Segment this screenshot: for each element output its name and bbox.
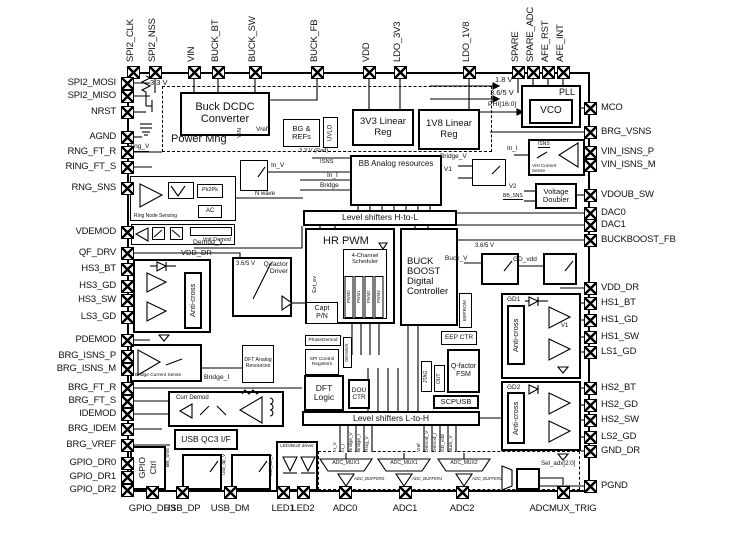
pin-VIN_ISNS_M bbox=[584, 159, 597, 172]
pin-PDEMOD bbox=[121, 334, 134, 347]
pin-HS1_SW bbox=[584, 331, 597, 344]
pin-label-BRG_FT_S: BRG_FT_S bbox=[2, 396, 116, 406]
pin-GPIO_DR3 bbox=[146, 486, 159, 499]
pin-label-BRG_FT_R: BRG_FT_R bbox=[2, 383, 116, 393]
pin-USB_DP bbox=[176, 486, 189, 499]
pin-label-BUCK_SW: BUCK_SW bbox=[248, 8, 258, 62]
pin-BRG_ISNS_M bbox=[121, 363, 134, 376]
label-bb-sns-gpio: BB_SNS bbox=[167, 448, 172, 467]
adc-buffer-label-2: ADC_BUFFER2 bbox=[472, 477, 502, 481]
pin-label-ADCMUX_TRIG: ADCMUX_TRIG bbox=[518, 504, 608, 514]
pin-VIN bbox=[188, 66, 201, 79]
ls2-buffer-icon bbox=[549, 421, 570, 442]
wire-label-Buck_V: Buck_V bbox=[450, 428, 455, 452]
wire-label-Bridge_V: Bridge_V bbox=[350, 428, 355, 452]
pin-HS1_GD bbox=[584, 314, 597, 327]
label-3v3-pad: 3.3 V (Pad) bbox=[299, 149, 328, 155]
pin-BRG_IDEM bbox=[121, 423, 134, 436]
pin-GPIO_DR2 bbox=[121, 484, 134, 497]
pin-VDD bbox=[363, 66, 376, 79]
label-in-v: In_V bbox=[271, 163, 284, 170]
pin-SPI2_NSS bbox=[149, 66, 162, 79]
label-phi: PHI[16:0] bbox=[488, 102, 516, 109]
curr-demod-amp-icon bbox=[180, 404, 192, 418]
label-ext-ev: Ext_ev bbox=[313, 276, 319, 293]
pin-label-NRST: NRST bbox=[2, 107, 116, 117]
pin-label-DAC1: DAC1 bbox=[601, 220, 726, 230]
pin-GPIO_DR0 bbox=[121, 457, 134, 470]
pin-LS2_GD bbox=[584, 431, 597, 444]
label-vdd-dr-net: VDD_DR bbox=[181, 249, 212, 257]
label-3v6-5v-sw: 3.6/5 V bbox=[475, 243, 494, 249]
ls1-buffer-icon bbox=[549, 339, 570, 360]
pin-label-LS3_GD: LS3_GD bbox=[2, 312, 116, 322]
pin-ADCMUX_TRIG bbox=[557, 486, 570, 499]
label-usb-dm-v: Usb_dm_V bbox=[269, 454, 274, 476]
pin-label-LS1_GD: LS1_GD bbox=[601, 347, 726, 357]
pin-label-VDD_DR: VDD_DR bbox=[601, 283, 726, 293]
pin-label-SPARE: SPARE bbox=[511, 8, 521, 62]
pin-USB_DM bbox=[224, 486, 237, 499]
pin-LS1_GD bbox=[584, 346, 597, 359]
pin-label-QF_DRV: QF_DRV bbox=[2, 248, 116, 258]
pin-ADC2 bbox=[456, 486, 469, 499]
label-v2: V2 bbox=[509, 184, 516, 190]
pin-BUCK_FB bbox=[311, 66, 324, 79]
pin-RING_FT_S bbox=[121, 161, 134, 174]
pin-label-BRG_ISNS_P: BRG_ISNS_P bbox=[2, 351, 116, 361]
pin-label-BUCKBOOST_FB: BUCKBOOST_FB bbox=[601, 235, 726, 245]
pin-GND_DR bbox=[584, 445, 597, 458]
label-bridge-bb: Bridge bbox=[320, 183, 339, 190]
label-in-i-vin: In_I bbox=[507, 146, 517, 152]
label-sel-adx: Sel_adx[2:0] bbox=[541, 461, 575, 467]
pin-PGND bbox=[584, 480, 597, 493]
pin-label-RNG_SNS: RNG_SNS bbox=[2, 183, 116, 193]
pin-BUCK_BT bbox=[212, 66, 225, 79]
pin-label-DAC0: DAC0 bbox=[601, 208, 726, 218]
pin-label-HS3_SW: HS3_SW bbox=[2, 295, 116, 305]
label-demod-v: Demod_V bbox=[193, 240, 223, 247]
pin-label-BRG_ISNS_M: BRG_ISNS_M bbox=[2, 364, 116, 374]
curr-demod-amp2-icon bbox=[240, 397, 262, 423]
wire-label-Ring_V: Ring_V bbox=[366, 428, 371, 452]
pin-HS3_BT bbox=[121, 263, 134, 276]
pin-label-LDO_3V3: LDO_3V3 bbox=[393, 8, 403, 62]
label-n-wave: N wave bbox=[255, 191, 275, 197]
led1-icon bbox=[283, 457, 297, 471]
pin-label-VDD: VDD bbox=[362, 8, 372, 62]
pin-LED2 bbox=[297, 486, 310, 499]
adc-mux-label-2: ADC_MUX2 bbox=[438, 461, 490, 466]
pin-label-GPIO_DR1: GPIO_DR1 bbox=[2, 472, 116, 482]
pin-label-VIN: VIN bbox=[187, 8, 197, 62]
wire-label-In_V: In_V bbox=[334, 428, 339, 452]
pin-BRG_FT_R bbox=[121, 382, 134, 395]
pin-label-HS1_BT: HS1_BT bbox=[601, 298, 726, 308]
pin-SPI2_MOSI bbox=[121, 77, 134, 90]
gd1-gnd-icon bbox=[558, 367, 568, 373]
adc-buffer0-icon bbox=[338, 474, 354, 486]
pin-label-VIN_ISNS_M: VIN_ISNS_M bbox=[601, 160, 726, 170]
qf-out-buffer-icon bbox=[282, 296, 292, 310]
pin-DAC1 bbox=[584, 219, 597, 232]
pin-label-RING_FT_S: RING_FT_S bbox=[2, 162, 116, 172]
pin-AFE_INT bbox=[557, 66, 570, 79]
pin-AGND bbox=[121, 131, 134, 144]
label-isns-bb: ISNS bbox=[320, 160, 334, 166]
pin-label-SPI2_MISO: SPI2_MISO bbox=[2, 91, 116, 101]
pin-VDD_DR bbox=[584, 282, 597, 295]
pin-LDO_1V8 bbox=[463, 66, 476, 79]
pin-GPIO_DR1 bbox=[121, 471, 134, 484]
pin-BRG_FT_S bbox=[121, 395, 134, 408]
pin-label-HS1_SW: HS1_SW bbox=[601, 332, 726, 342]
label-v1-gd1: V1 bbox=[561, 323, 568, 329]
pin-BUCKBOOST_FB bbox=[584, 234, 597, 247]
adc-buffer2-icon bbox=[456, 474, 472, 486]
pin-HS1_BT bbox=[584, 297, 597, 310]
pin-label-IDEMOD: IDEMOD bbox=[2, 409, 116, 419]
adc-mux-label-1: ADC_MUX1 bbox=[378, 461, 430, 466]
pin-label-BUCK_BT: BUCK_BT bbox=[211, 8, 221, 62]
pin-label-SPARE_ADC: SPARE_ADC bbox=[526, 8, 536, 62]
pin-label-RNG_FT_R: RNG_FT_R bbox=[2, 147, 116, 157]
pin-LS3_GD bbox=[121, 311, 134, 324]
pin-HS3_GD bbox=[121, 280, 134, 293]
hs2-buffer-icon bbox=[549, 393, 570, 414]
label-in-i-bb: In_I bbox=[327, 173, 338, 180]
pin-BUCK_SW bbox=[249, 66, 262, 79]
pin-label-LDO_1V8: LDO_1V8 bbox=[462, 8, 472, 62]
pin-label-VIN_ISNS_P: VIN_ISNS_P bbox=[601, 147, 726, 157]
pin-label-GPIO_DR0: GPIO_DR0 bbox=[2, 458, 116, 468]
adc-buffer1-icon bbox=[396, 474, 412, 486]
pin-AFE_RST bbox=[542, 66, 555, 79]
pin-NRST bbox=[121, 106, 134, 119]
pin-label-SPI2_MOSI: SPI2_MOSI bbox=[2, 78, 116, 88]
pin-RNG_SNS bbox=[121, 182, 134, 195]
pin-RNG_FT_R bbox=[121, 146, 134, 159]
pin-SPI2_MISO bbox=[121, 90, 134, 103]
pin-ADC0 bbox=[339, 486, 352, 499]
pin-label-PDEMOD: PDEMOD bbox=[2, 335, 116, 345]
pin-label-BUCK_FB: BUCK_FB bbox=[310, 8, 320, 62]
gd2-diode-icon bbox=[529, 385, 538, 394]
ls3-buffer-icon bbox=[147, 302, 166, 321]
pin-label-HS2_SW: HS2_SW bbox=[601, 415, 726, 425]
pin-label-SPI2_CLK: SPI2_CLK bbox=[126, 8, 136, 62]
pin-label-MCO: MCO bbox=[601, 103, 726, 113]
label-3v6-5v: 3.6/5 V bbox=[490, 89, 514, 97]
vin-sense-amp-icon bbox=[559, 143, 578, 167]
label-bb-sns: BB_SNS bbox=[503, 194, 523, 200]
pin-label-HS2_BT: HS2_BT bbox=[601, 383, 726, 393]
pin-HS2_GD bbox=[584, 399, 597, 412]
block-diagram: Power Mng Buck DCDC Converter BG & REFs … bbox=[0, 0, 733, 543]
led2-icon bbox=[301, 457, 315, 471]
pin-label-GND_DR: GND_DR bbox=[601, 446, 726, 456]
label-bridge-i: Bridge_I bbox=[204, 375, 229, 382]
pin-QF_DRV bbox=[121, 247, 134, 260]
pin-LDO_3V3 bbox=[394, 66, 407, 79]
label-1v8: 1.8 V bbox=[495, 76, 513, 84]
pin-HS2_SW bbox=[584, 414, 597, 427]
label-vref: Vref bbox=[256, 127, 268, 134]
pin-IDEMOD bbox=[121, 408, 134, 421]
wire-label-Bridge_I: Bridge_I bbox=[358, 428, 363, 452]
bridge-sense-amp-icon bbox=[138, 350, 160, 375]
hs3-buffer-icon bbox=[147, 273, 166, 292]
driver3-diode-icon bbox=[157, 262, 166, 271]
label-3v3: 3.3 V bbox=[150, 79, 168, 87]
pin-BRG_VSNS bbox=[584, 126, 597, 139]
pin-ADC1 bbox=[399, 486, 412, 499]
pin-BRG_VREF bbox=[121, 439, 134, 452]
pin-label-PGND: PGND bbox=[601, 481, 726, 491]
pin-label-SPI2_NSS: SPI2_NSS bbox=[148, 8, 158, 62]
pin-label-HS2_GD: HS2_GD bbox=[601, 400, 726, 410]
pin-label-HS3_BT: HS3_BT bbox=[2, 264, 116, 274]
label-usb-dp-v: Usb_dp_V bbox=[222, 454, 227, 475]
pin-VDEMOD bbox=[121, 226, 134, 239]
wire-label-GD_vdd: GD_vdd bbox=[442, 428, 447, 452]
sel-mux-icon bbox=[502, 466, 512, 490]
label-vin-rail: VIN bbox=[237, 128, 243, 138]
sched-marker-icon bbox=[379, 243, 387, 249]
pin-VDOUB_SW bbox=[584, 189, 597, 202]
pin-SPARE bbox=[512, 66, 525, 79]
pin-label-VDEMOD: VDEMOD bbox=[2, 227, 116, 237]
pin-label-LS2_GD: LS2_GD bbox=[601, 432, 726, 442]
pin-label-ADC2: ADC2 bbox=[417, 504, 507, 514]
pin-label-AGND: AGND bbox=[2, 132, 116, 142]
label-v1-a: V1 bbox=[444, 167, 452, 174]
valley-icon bbox=[171, 186, 185, 196]
wire-label-Demod_I: Demod_I bbox=[434, 428, 439, 452]
adc-buffer-label-0: ADC_BUFFER0 bbox=[354, 477, 384, 481]
pin-SPARE_ADC bbox=[527, 66, 540, 79]
pin-label-HS3_GD: HS3_GD bbox=[2, 281, 116, 291]
label-gd-vdd: GD_vdd bbox=[513, 257, 537, 264]
pin-HS3_SW bbox=[121, 294, 134, 307]
pin-label-BRG_VSNS: BRG_VSNS bbox=[601, 127, 726, 137]
pin-BRG_ISNS_P bbox=[121, 350, 134, 363]
label-bridge-v: Bridge_V bbox=[440, 154, 467, 161]
wire-label-Vref: Vref bbox=[418, 428, 423, 452]
gd1-diode-icon bbox=[529, 297, 538, 306]
pin-label-BRG_VREF: BRG_VREF bbox=[2, 440, 116, 450]
ring-amp-icon bbox=[140, 184, 162, 207]
label-buck-v: Buck_V bbox=[445, 256, 467, 263]
driver3-gnd-icon bbox=[159, 335, 169, 341]
pin-MCO bbox=[584, 102, 597, 115]
pin-label-BRG_IDEM: BRG_IDEM bbox=[2, 424, 116, 434]
wire-label-Demod_V: Demod_V bbox=[426, 428, 431, 452]
pin-LED1 bbox=[277, 486, 290, 499]
wire-label-In_I: In_I bbox=[342, 428, 347, 452]
pin-label-VDOUB_SW: VDOUB_SW bbox=[601, 190, 726, 200]
pin-label-HS1_GD: HS1_GD bbox=[601, 315, 726, 325]
adc-mux-label-0: ADC_MUX1 bbox=[320, 461, 372, 466]
volt-demod-amp-icon bbox=[136, 228, 148, 241]
pin-VIN_ISNS_P bbox=[584, 146, 597, 159]
pin-label-AFE_RST: AFE_RST bbox=[541, 8, 551, 62]
adc-buffer-label-1: ADC_BUFFER1 bbox=[412, 477, 442, 481]
pin-HS2_BT bbox=[584, 382, 597, 395]
pin-label-GPIO_DR2: GPIO_DR2 bbox=[2, 485, 116, 495]
pin-label-AFE_INT: AFE_INT bbox=[556, 8, 566, 62]
